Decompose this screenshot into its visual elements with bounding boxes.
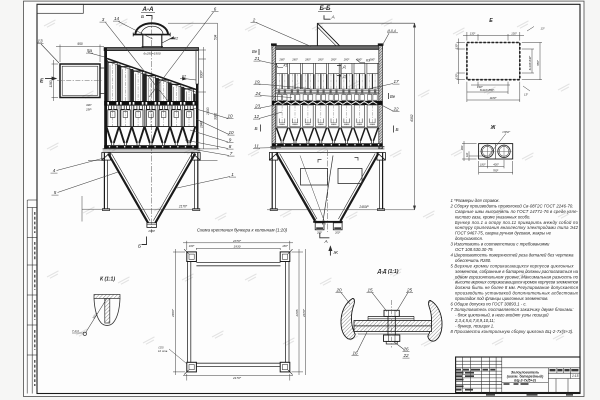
svg-text:280*: 280* [317, 57, 324, 61]
svg-text:180*: 180* [189, 244, 195, 248]
svg-text:ОСТ 108.530.30-79.: ОСТ 108.530.30-79. [455, 247, 494, 252]
svg-text:А-А: А-А [141, 6, 154, 13]
svg-text:Б: Б [141, 14, 144, 20]
svg-text:16: 16 [352, 351, 358, 356]
svg-text:6 Общие допуски по ГОСТ 30893.: 6 Общие допуски по ГОСТ 30893.1 - с. [451, 302, 527, 307]
svg-text:11: 11 [254, 144, 259, 149]
svg-text:6х250=1500: 6х250=1500 [143, 52, 160, 56]
svg-text:Ве: Ве [390, 94, 396, 99]
svg-text:2370*: 2370* [232, 239, 242, 243]
svg-text:760*: 760* [493, 169, 499, 173]
svg-text:- блок циклонный, в него входя: - блок циклонный, в него входят узлы поз… [455, 312, 549, 317]
svg-text:1:15: 1:15 [572, 374, 579, 378]
svg-text:3 Изготовить в соответствии с: 3 Изготовить в соответствии с требования… [451, 242, 551, 247]
svg-text:элементов, собранные в батарею: элементов, собранные в батарею должны ра… [455, 269, 579, 274]
svg-text:обеспечить Rz80.: обеспечить Rz80. [455, 258, 491, 263]
svg-text:950: 950 [77, 42, 83, 46]
svg-text:Б: Б [396, 127, 399, 133]
svg-text:1: 1 [231, 172, 234, 177]
svg-text:130*: 130* [454, 43, 458, 49]
svg-text:2 Сборку производить проволоко: 2 Сборку производить проволокой Св-08Г2С… [450, 203, 574, 208]
svg-text:2400*: 2400* [171, 308, 175, 318]
svg-text:280*: 280* [278, 57, 285, 61]
svg-text:1930: 1930 [234, 244, 241, 248]
svg-text:7: 7 [230, 151, 233, 156]
svg-text:Д-Д (1:1): Д-Д (1:1) [377, 269, 399, 275]
svg-text:1180: 1180 [49, 80, 53, 87]
svg-text:21: 21 [253, 56, 260, 61]
svg-text:Бункер поз.1 и опору поз.11 пр: Бункер поз.1 и опору поз.11 приварить ме… [455, 220, 579, 225]
svg-text:Б: Б [255, 126, 258, 132]
svg-text:А: А [324, 239, 328, 245]
svg-text:1846: 1846 [200, 121, 204, 128]
svg-text:Б: Б [138, 244, 141, 250]
svg-text:Сварные швы выполнять по ГОСТ: Сварные швы выполнять по ГОСТ 14771-76 в… [455, 209, 579, 214]
svg-text:∅352*: ∅352* [502, 130, 511, 134]
svg-text:Д: Д [342, 65, 346, 69]
svg-text:280*: 280* [343, 57, 350, 61]
svg-text:К (1:1): К (1:1) [100, 277, 115, 283]
svg-text:19: 19 [254, 80, 260, 85]
svg-text:4 Шероховатость поверхностей р: 4 Шероховатость поверхностей реза детале… [451, 253, 575, 258]
svg-text:17: 17 [393, 79, 399, 84]
svg-text:12: 12 [254, 114, 260, 119]
svg-text:10: 10 [228, 130, 234, 135]
svg-text:Схема крепления бункера к коло: Схема крепления бункера к колоннам (1:20… [197, 228, 288, 233]
svg-text:К2: К2 [182, 75, 186, 79]
svg-text:К3: К3 [366, 59, 370, 63]
svg-text:14: 14 [114, 16, 120, 21]
svg-text:Ж: Ж [333, 250, 339, 256]
svg-text:Е: Е [40, 79, 44, 85]
svg-text:26: 26 [402, 347, 409, 352]
svg-text:8х110=880*: 8х110=880* [480, 88, 495, 92]
svg-text:высоте верхних соприкасающихся: высоте верхних соприкасающихся кромок ко… [455, 280, 579, 285]
svg-text:180*: 180* [282, 244, 288, 248]
svg-text:Б-Б: Б-Б [319, 5, 331, 12]
svg-text:прокладок под фланцы циклонных: прокладок под фланцы циклонных элементов… [455, 296, 549, 301]
svg-text:5а: 5а [87, 48, 93, 53]
svg-text:13: 13 [37, 39, 43, 44]
svg-text:4352: 4352 [410, 114, 414, 122]
svg-text:8 Произвести контрольную сборк: 8 Произвести контрольную сборку циклона … [451, 329, 574, 334]
svg-text:2: 2 [252, 18, 256, 23]
svg-text:К1: К1 [284, 64, 288, 68]
svg-text:2370*: 2370* [302, 308, 306, 318]
svg-text:1500: 1500 [206, 107, 210, 115]
svg-text:24: 24 [254, 91, 261, 96]
svg-text:880*: 880* [536, 59, 540, 65]
svg-text:534: 534 [213, 34, 217, 40]
svg-text:Ве: Ве [252, 49, 258, 54]
svg-text:7 Золоуловитель поставляется з: 7 Золоуловитель поставляется заказчику д… [451, 307, 575, 312]
svg-text:10: 10 [227, 114, 233, 119]
svg-text:2170*: 2170* [232, 376, 242, 380]
svg-text:280*: 280* [304, 57, 311, 61]
svg-text:ГОСТ 9467-75, сварка ручная ду: ГОСТ 9467-75, сварка ручная дуговая, жак… [455, 231, 552, 236]
svg-text:20: 20 [335, 288, 342, 293]
svg-text:одном горизонтальном уровне. М: одном горизонтальном уровне. Максимальна… [455, 274, 579, 279]
svg-text:2,3,4,5,6,7,8,9,10,11;: 2,3,4,5,6,7,8,9,10,11; [454, 318, 496, 323]
svg-text:25Р: 25Р [85, 108, 91, 112]
svg-text:400*: 400* [493, 162, 499, 166]
svg-text:БЦ-2-7х(5+3): БЦ-2-7х(5+3) [514, 378, 536, 382]
svg-text:8: 8 [229, 144, 232, 149]
svg-text:130*: 130* [454, 73, 458, 79]
svg-text:контуру прилегания внахлестку: контуру прилегания внахлестку электродам… [455, 225, 579, 230]
svg-text:180*: 180* [480, 162, 486, 166]
svg-text:15: 15 [367, 288, 373, 293]
svg-text:280*: 280* [291, 57, 298, 61]
svg-text:22: 22 [392, 107, 399, 112]
svg-text:допускаются.: допускаются. [455, 236, 483, 241]
svg-text:23: 23 [254, 104, 261, 109]
svg-text:200Р: 200Р [147, 229, 155, 233]
svg-text:И-0,4: И-0,4 [388, 29, 396, 33]
svg-text:6: 6 [214, 7, 217, 12]
svg-text:4: 4 [53, 168, 56, 173]
svg-text:К2: К2 [174, 37, 178, 41]
svg-text:130*: 130* [470, 31, 476, 35]
svg-text:кислого газа, кроме указанных: кислого газа, кроме указанных особо. [455, 214, 531, 219]
svg-text:А: А [331, 14, 335, 20]
svg-text:5: 5 [54, 190, 57, 195]
svg-text:2205: 2205 [295, 309, 299, 317]
svg-text:33Р: 33Р [86, 103, 91, 107]
svg-text:1 *Размеры для справок.: 1 *Размеры для справок. [451, 198, 500, 203]
svg-text:5 Верхние кромки соприкасающих: 5 Верхние кромки соприкасающихся корпусо… [451, 263, 575, 268]
svg-text:22: 22 [402, 353, 409, 358]
svg-text:25: 25 [406, 288, 413, 293]
svg-text:Т-0,3: Т-0,3 [72, 329, 79, 333]
svg-text:3382: 3382 [213, 113, 217, 120]
svg-text:производить установкой дополни: производить установкой дополнительных ас… [455, 291, 579, 296]
svg-text:600Р: 600Р [200, 70, 204, 78]
svg-text:300: 300 [460, 145, 464, 150]
svg-text:12 отв.: 12 отв. [158, 349, 168, 353]
svg-text:2170*: 2170* [178, 205, 188, 209]
svg-text:Е: Е [489, 18, 493, 24]
svg-text:9: 9 [229, 138, 232, 143]
svg-text:- бункер, позиция 1.: - бункер, позиция 1. [455, 323, 494, 328]
svg-text:6х105=630*: 6х105=630* [528, 55, 532, 70]
svg-text:3: 3 [102, 17, 105, 22]
svg-text:200*: 200* [334, 232, 341, 235]
svg-text:110: 110 [465, 152, 469, 157]
svg-text:должна быть не более 8 мм. Рег: должна быть не более 8 мм. Регулирование… [455, 285, 579, 290]
svg-text:1180*: 1180* [490, 96, 498, 100]
svg-text:130*: 130* [511, 31, 517, 35]
svg-text:2450Р: 2450Р [358, 205, 369, 209]
svg-text:280*: 280* [330, 57, 337, 61]
